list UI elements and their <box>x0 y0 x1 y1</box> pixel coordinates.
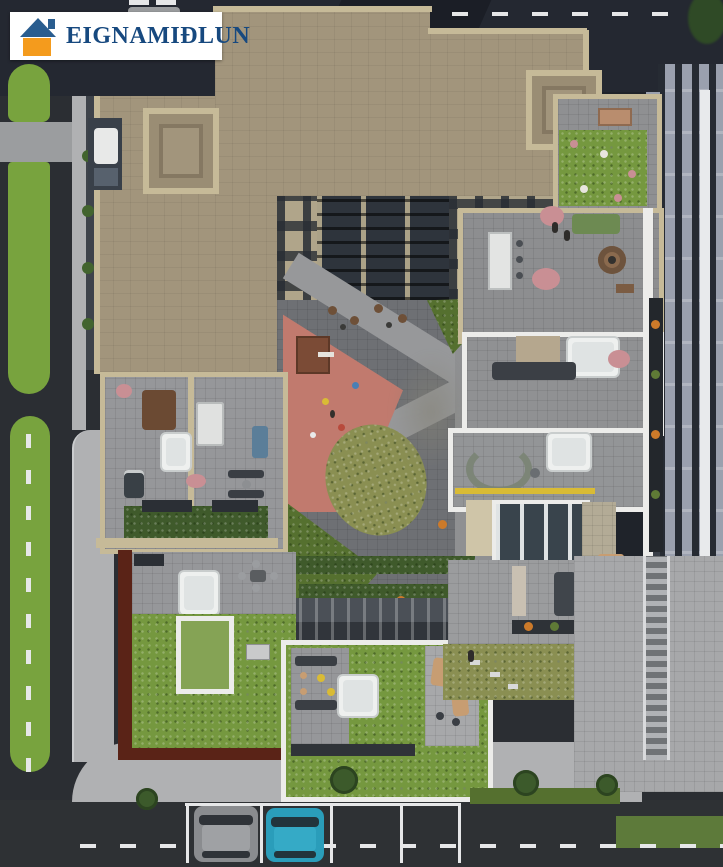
pink-tree <box>532 268 560 290</box>
flower-accent <box>651 430 660 439</box>
grill <box>124 470 144 498</box>
curved-sofa <box>466 444 532 494</box>
hot-tub <box>337 674 379 718</box>
grass-median <box>8 162 50 394</box>
hot-tub <box>546 432 592 472</box>
bush <box>82 262 94 274</box>
cafe-table <box>374 304 383 313</box>
crosswalk-dash <box>129 0 149 5</box>
parked-car-suv <box>194 806 258 862</box>
street-tree <box>513 770 539 796</box>
person-figure <box>564 230 570 241</box>
planter-box <box>212 500 258 512</box>
hedge-row <box>283 556 475 574</box>
roof-notch-terrace <box>88 118 122 190</box>
street-tree <box>596 774 618 796</box>
roof-skylight <box>176 616 234 694</box>
aerial-site-render: EIGNAMIÐLUN <box>0 0 723 867</box>
flower-accent <box>651 320 660 329</box>
flower-accent <box>438 520 447 529</box>
external-staircase <box>645 556 667 760</box>
flower-accent <box>600 150 608 158</box>
bush <box>82 318 94 330</box>
flower-accent <box>628 170 636 178</box>
car-roof <box>202 825 250 851</box>
flower-accent <box>651 370 660 379</box>
yellow-bench <box>455 488 595 494</box>
ball <box>352 382 359 389</box>
flower-accent <box>580 185 588 193</box>
sofa <box>295 656 337 666</box>
house-chimney <box>48 19 55 29</box>
side-table <box>300 688 307 695</box>
ball <box>338 424 345 431</box>
stepping-stone <box>508 684 518 689</box>
beige-roof <box>215 196 277 372</box>
sofa <box>492 362 576 380</box>
balcony <box>94 168 118 186</box>
patio-chair <box>238 572 246 580</box>
car-windshield <box>271 817 319 827</box>
outdoor-rug <box>516 336 560 364</box>
roof-light-well <box>143 108 219 194</box>
ball <box>310 432 316 438</box>
car-rear-window <box>202 851 250 858</box>
blue-cabinet <box>252 426 268 458</box>
vent-box <box>246 644 270 660</box>
flower-accent <box>614 194 622 202</box>
logo-text: EIGNAMIÐLUN <box>66 12 218 60</box>
house-icon <box>18 16 62 56</box>
car-rear-window <box>274 851 316 858</box>
parking-line <box>260 803 263 863</box>
cafe-chair <box>340 324 346 330</box>
parking-line <box>186 803 189 863</box>
car-windshield <box>199 815 253 825</box>
parked-car-teal <box>266 808 324 862</box>
parking-line <box>458 803 461 863</box>
outdoor-kitchen <box>196 402 224 446</box>
flower-accent <box>550 622 559 631</box>
sofa <box>554 572 576 616</box>
person-figure <box>552 222 558 233</box>
crosswalk-dash <box>156 0 176 5</box>
flower-accent <box>570 140 578 148</box>
bush <box>82 205 94 217</box>
car-roof <box>274 827 316 851</box>
alley-planter <box>649 298 663 552</box>
planter-box <box>291 744 415 756</box>
side-table <box>300 672 307 679</box>
maroon-wall <box>126 748 302 760</box>
lounge-set <box>228 470 270 498</box>
bar-stool <box>516 240 523 247</box>
stepping-stone <box>490 672 500 677</box>
yellow-cushion <box>327 688 335 696</box>
glass-atrium <box>466 500 492 556</box>
sofa <box>228 490 264 498</box>
dining-table <box>142 390 176 430</box>
chair <box>436 712 444 720</box>
green-sofa <box>572 214 620 234</box>
fire-pit-center <box>608 256 616 264</box>
pink-plant <box>186 474 206 488</box>
coffee-table <box>242 480 251 489</box>
planter-box <box>142 500 192 512</box>
cafe-table <box>350 316 359 325</box>
east-terrace-3 <box>462 332 664 436</box>
bench <box>616 284 634 293</box>
cafe-chair <box>386 322 392 328</box>
sofa <box>228 470 264 478</box>
patio-set <box>236 560 280 594</box>
parking-line <box>400 803 403 863</box>
roof-parapet <box>428 28 587 34</box>
light-well-inner <box>159 124 203 178</box>
street-tree <box>136 788 158 810</box>
skylight-box <box>94 128 118 164</box>
maroon-wall <box>118 550 132 760</box>
stair-railing <box>667 556 670 760</box>
patio-chair <box>270 572 278 580</box>
lane-dashes-left <box>26 424 31 772</box>
cafe-table <box>398 314 407 323</box>
side-table <box>530 468 540 478</box>
parapet <box>96 538 278 548</box>
house-body <box>23 38 51 56</box>
street-tree <box>330 766 358 794</box>
yellow-cushion <box>317 674 325 682</box>
eignamidlun-logo: EIGNAMIÐLUN <box>10 12 222 60</box>
street-bottom <box>0 800 723 867</box>
chair <box>452 718 460 726</box>
ball <box>322 398 329 405</box>
roof-parapet <box>213 6 432 12</box>
pink-plant <box>116 384 132 398</box>
daybed <box>160 432 192 472</box>
flower-accent <box>524 622 533 631</box>
pink-plant <box>608 350 630 368</box>
sofa <box>295 700 337 710</box>
flower-accent <box>651 490 660 499</box>
atrium-steps <box>582 502 616 556</box>
planter-box <box>134 554 164 566</box>
child-figure <box>330 410 335 418</box>
bar-stool <box>516 272 523 279</box>
person-figure <box>468 650 474 662</box>
planter-box <box>512 620 576 634</box>
hot-tub <box>178 570 220 616</box>
patio-chair <box>252 560 260 568</box>
parking-line <box>330 803 333 863</box>
playground-slide <box>318 352 334 357</box>
cafe-seating <box>322 298 432 338</box>
patio-table <box>250 570 266 582</box>
stair-railing <box>643 556 646 760</box>
patio-chair <box>252 584 260 592</box>
grass-median <box>8 64 50 122</box>
cafe-table <box>328 306 337 315</box>
lane-dashes-bottom <box>80 844 723 848</box>
long-bench <box>512 566 526 616</box>
bar-counter <box>488 232 512 290</box>
bench <box>598 108 632 126</box>
bar-stool <box>516 256 523 263</box>
